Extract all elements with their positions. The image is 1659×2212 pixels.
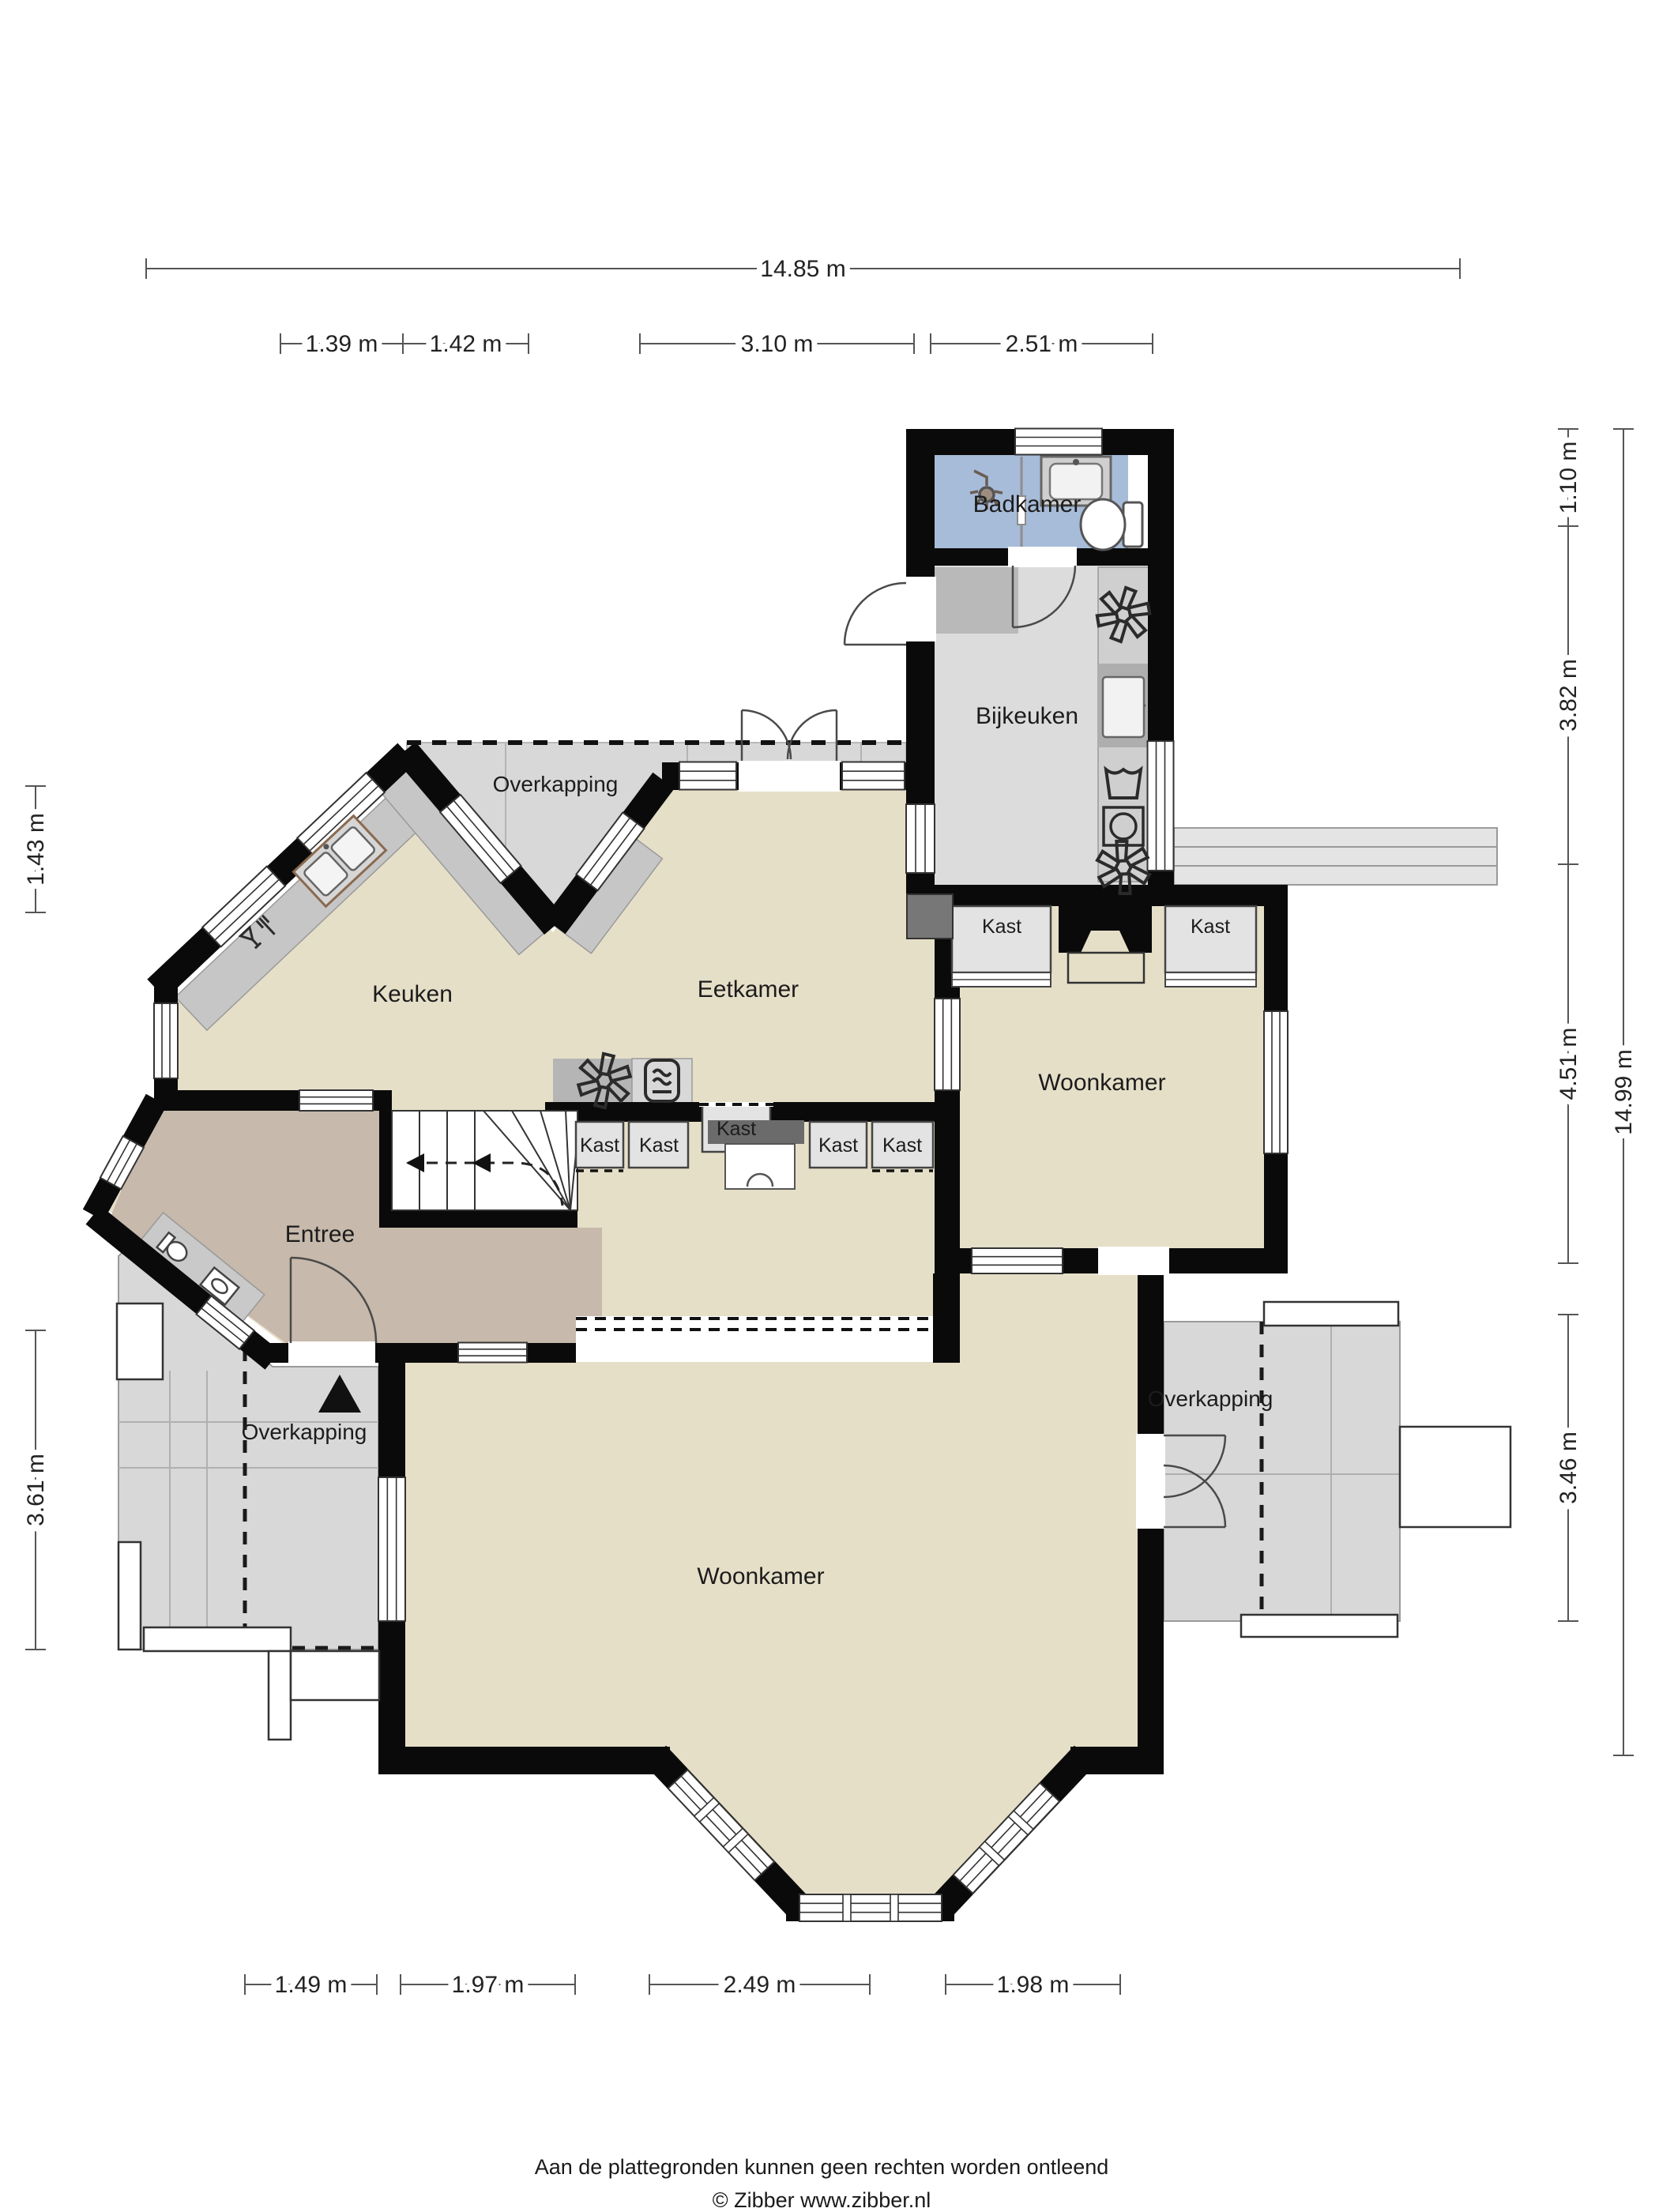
room-label-kast-4: Kast bbox=[580, 1134, 619, 1157]
dimension-line: 14.85 m bbox=[146, 256, 1460, 282]
window bbox=[799, 1894, 942, 1921]
dimension-line: 4.51 m bbox=[1556, 864, 1582, 1263]
dimension-label: 3.46 m bbox=[1556, 1431, 1582, 1504]
fireplace-right bbox=[1059, 885, 1152, 983]
window bbox=[972, 1248, 1063, 1273]
dimension-label: 2.49 m bbox=[724, 1972, 796, 1998]
dimension-label: 1.10 m bbox=[1556, 442, 1582, 514]
utility-sink-icon bbox=[1103, 677, 1144, 737]
dimension-label: 3.61 m bbox=[23, 1454, 49, 1526]
staircase bbox=[392, 1111, 577, 1210]
dimension-line: 3.61 m bbox=[23, 1330, 49, 1650]
room-label-eetkamer: Eetkamer bbox=[698, 976, 799, 1003]
dimension-line: 2.49 m bbox=[649, 1972, 870, 1998]
room-label-kast-7: Kast bbox=[882, 1134, 922, 1157]
terrace bbox=[1174, 828, 1497, 885]
dimension-line: 2.51 m bbox=[931, 331, 1153, 357]
window bbox=[458, 1343, 527, 1363]
window bbox=[679, 762, 736, 790]
dimension-label: 1.49 m bbox=[275, 1972, 348, 1998]
footer-disclaimer: Aan de plattegronden kunnen geen rechten… bbox=[535, 2155, 1109, 2179]
dimension-label: 3.10 m bbox=[741, 331, 814, 357]
floorplan-page: BadkamerBijkeukenEetkamerKeukenWoonkamer… bbox=[0, 0, 1659, 2212]
footer: Aan de plattegronden kunnen geen rechten… bbox=[535, 2155, 1109, 2212]
dimension-line: 3.10 m bbox=[640, 331, 914, 357]
dimension-label: 1.42 m bbox=[430, 331, 502, 357]
room-label-kast-5: Kast bbox=[639, 1134, 679, 1157]
footer-copyright: © Zibber www.zibber.nl bbox=[713, 2188, 931, 2212]
dimension-label: 14.85 m bbox=[760, 256, 845, 282]
dimension-line: 1.39 m bbox=[280, 331, 403, 357]
dimension-line: 1.43 m bbox=[23, 786, 49, 912]
floorplan-svg: BadkamerBijkeukenEetkamerKeukenWoonkamer… bbox=[0, 0, 1659, 2212]
dimension-line: 1.49 m bbox=[245, 1972, 377, 1998]
dimension-line: 1.42 m bbox=[403, 331, 529, 357]
dimension-line: 1.98 m bbox=[946, 1972, 1120, 1998]
room-label-woonkamer-rechts: Woonkamer bbox=[1038, 1070, 1165, 1096]
dimension-label: 4.51 m bbox=[1556, 1028, 1582, 1100]
bijkeuken-cabinet bbox=[935, 567, 1018, 634]
open-passage bbox=[576, 1316, 933, 1362]
dimension-line: 1.97 m bbox=[401, 1972, 575, 1998]
overkapping-right-floor bbox=[1164, 1322, 1400, 1621]
window bbox=[1264, 1011, 1288, 1153]
dimension-label: 1.43 m bbox=[23, 813, 49, 886]
room-label-overkapping-rechts: Overkapping bbox=[1148, 1386, 1273, 1411]
dimension-label: 1.39 m bbox=[306, 331, 378, 357]
toilet-icon bbox=[1081, 499, 1142, 550]
dimension-label: 1.98 m bbox=[997, 1972, 1070, 1998]
room-label-woonkamer: Woonkamer bbox=[697, 1563, 824, 1589]
dimension-label: 14.99 m bbox=[1611, 1049, 1637, 1134]
room-label-overkapping-links: Overkapping bbox=[242, 1420, 367, 1444]
dimension-line: 1.10 m bbox=[1556, 429, 1582, 526]
dimension-label: 3.82 m bbox=[1556, 659, 1582, 732]
window bbox=[906, 804, 935, 873]
dimension-line: 3.46 m bbox=[1556, 1315, 1582, 1621]
window bbox=[154, 1003, 178, 1078]
room-label-overkapping-boven: Overkapping bbox=[493, 772, 619, 796]
room-label-entree: Entree bbox=[285, 1221, 355, 1247]
room-label-kast-3: Kast bbox=[717, 1118, 756, 1140]
window bbox=[1015, 429, 1102, 455]
window bbox=[842, 762, 905, 790]
room-label-kast-6: Kast bbox=[818, 1134, 858, 1157]
window bbox=[378, 1477, 405, 1621]
window bbox=[299, 1090, 373, 1111]
room-label-bijkeuken: Bijkeuken bbox=[976, 703, 1078, 729]
room-label-badkamer: Badkamer bbox=[973, 491, 1082, 517]
window bbox=[1148, 741, 1174, 871]
room-label-kast-1: Kast bbox=[982, 916, 1021, 938]
room-label-keuken: Keuken bbox=[372, 981, 453, 1007]
dimension-label: 1.97 m bbox=[452, 1972, 525, 1998]
dimension-line: 14.99 m bbox=[1611, 429, 1637, 1755]
dimension-label: 2.51 m bbox=[1006, 331, 1078, 357]
dimension-line: 3.82 m bbox=[1556, 526, 1582, 864]
window bbox=[935, 999, 960, 1090]
flue-block bbox=[907, 894, 953, 939]
room-label-kast-2: Kast bbox=[1191, 916, 1230, 938]
